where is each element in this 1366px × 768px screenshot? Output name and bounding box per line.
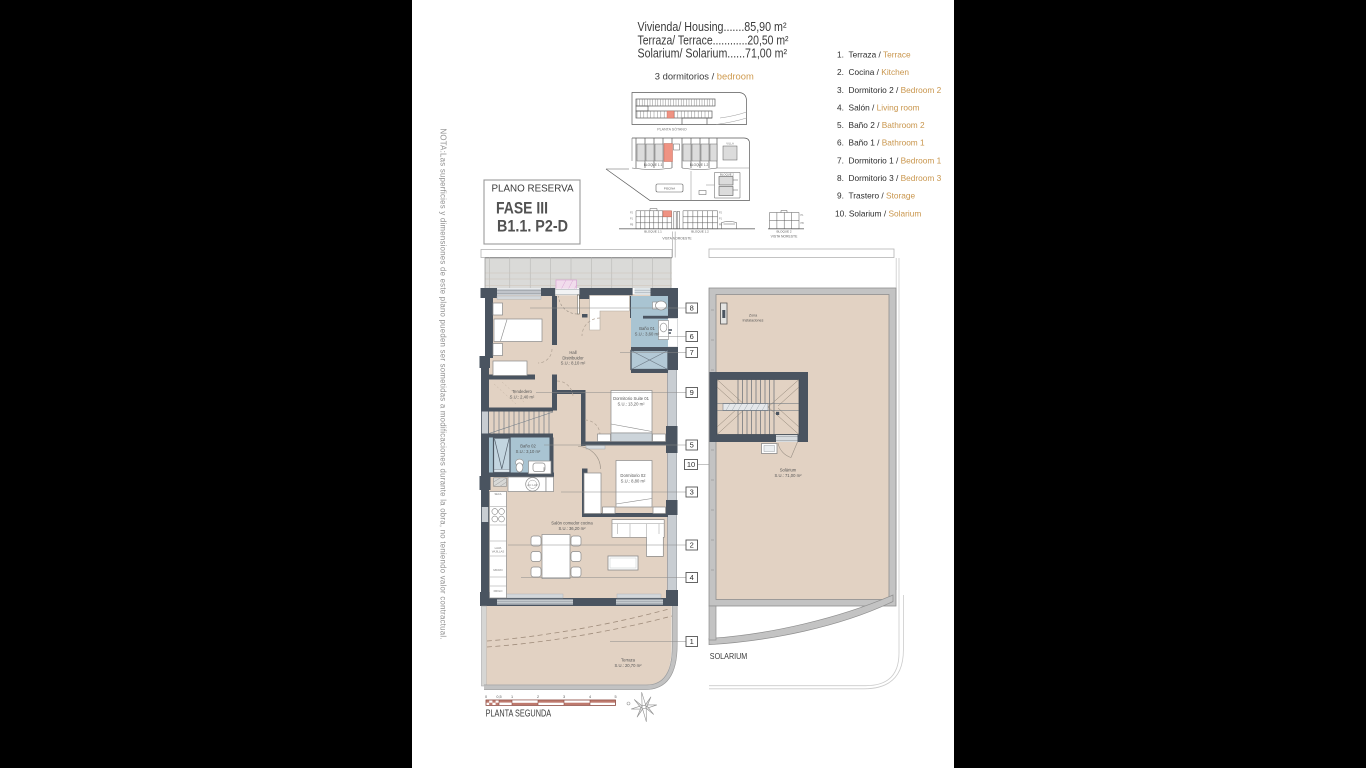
svg-text:B1.1. P2-D: B1.1. P2-D bbox=[497, 218, 568, 236]
svg-text:VISTA NORESTE: VISTA NORESTE bbox=[771, 235, 798, 239]
svg-text:AC LAV: AC LAV bbox=[527, 483, 537, 487]
svg-text:8. Dormitorio 3 / Bedroom 3: 8. Dormitorio 3 / Bedroom 3 bbox=[837, 173, 942, 183]
svg-text:BLOQUE 1.2: BLOQUE 1.2 bbox=[691, 230, 709, 234]
svg-text:3: 3 bbox=[563, 695, 565, 699]
svg-text:1: 1 bbox=[690, 637, 694, 646]
svg-text:S.U.: 13,20 m²: S.U.: 13,20 m² bbox=[618, 401, 646, 406]
svg-text:Instalaciones: Instalaciones bbox=[743, 318, 764, 322]
svg-text:7. Dormitorio 1 / Bedroom 1: 7. Dormitorio 1 / Bedroom 1 bbox=[837, 155, 942, 165]
svg-text:Zona: Zona bbox=[749, 314, 757, 318]
svg-text:S.U.: 3,10 m²: S.U.: 3,10 m² bbox=[516, 449, 541, 454]
svg-text:S.U.: 71,00 m²: S.U.: 71,00 m² bbox=[775, 473, 803, 478]
svg-text:Baño 01: Baño 01 bbox=[639, 326, 655, 331]
svg-text:6: 6 bbox=[690, 332, 694, 341]
svg-text:Salón comedor cocina: Salón comedor cocina bbox=[551, 521, 593, 526]
svg-text:BLOQUE 2: BLOQUE 2 bbox=[776, 230, 791, 234]
svg-text:S.U.: 36,20 m²: S.U.: 36,20 m² bbox=[559, 526, 587, 531]
svg-text:FRIGO: FRIGO bbox=[494, 589, 504, 593]
svg-text:PB: PB bbox=[801, 222, 805, 225]
svg-text:Dormitorio 02: Dormitorio 02 bbox=[620, 473, 646, 478]
svg-text:Distribuidor: Distribuidor bbox=[562, 355, 584, 360]
svg-text:10. Solarium / Solarium: 10. Solarium / Solarium bbox=[835, 208, 921, 218]
svg-text:Dormitorio Suite 01: Dormitorio Suite 01 bbox=[613, 396, 650, 401]
svg-text:VISTA NOROESTE: VISTA NOROESTE bbox=[662, 237, 692, 241]
svg-text:9. Trastero / Storage: 9. Trastero / Storage bbox=[837, 191, 915, 201]
svg-text:5: 5 bbox=[614, 695, 616, 699]
svg-text:2: 2 bbox=[690, 541, 694, 550]
svg-text:SECA: SECA bbox=[494, 492, 501, 496]
svg-text:S.U.: 20,70 m²: S.U.: 20,70 m² bbox=[615, 663, 643, 668]
svg-text:3: 3 bbox=[690, 488, 694, 497]
svg-text:PB: PB bbox=[719, 224, 723, 227]
svg-text:Hall: Hall bbox=[569, 350, 576, 355]
svg-text:Baño 02: Baño 02 bbox=[520, 444, 536, 449]
svg-text:SOLARIUM: SOLARIUM bbox=[710, 651, 748, 661]
svg-text:3. Dormitorio 2 / Bedroom 2: 3. Dormitorio 2 / Bedroom 2 bbox=[837, 85, 942, 95]
svg-text:BLOQUE 2: BLOQUE 2 bbox=[720, 173, 734, 177]
svg-text:5. Baño 2 / Bathroom 2: 5. Baño 2 / Bathroom 2 bbox=[837, 120, 925, 130]
svg-text:4. Salón / Living room: 4. Salón / Living room bbox=[837, 102, 920, 112]
svg-text:NOTA:Las superficies y dimensi: NOTA:Las superficies y dimensiones de es… bbox=[439, 129, 448, 640]
svg-text:4: 4 bbox=[589, 695, 591, 699]
svg-text:Solárium: Solárium bbox=[780, 468, 797, 473]
svg-text:6. Baño 1 / Bathroom 1: 6. Baño 1 / Bathroom 1 bbox=[837, 138, 925, 148]
svg-text:PLANTA SÓTANO: PLANTA SÓTANO bbox=[657, 127, 687, 132]
svg-text:S.U.: 8,80 m²: S.U.: 8,80 m² bbox=[621, 478, 646, 483]
svg-text:S.U.: 8,10 m²: S.U.: 8,10 m² bbox=[561, 361, 586, 366]
svg-text:BLOQUE 1.1: BLOQUE 1.1 bbox=[644, 163, 663, 167]
svg-text:0,5: 0,5 bbox=[496, 695, 501, 699]
svg-text:9: 9 bbox=[690, 388, 694, 397]
svg-text:MICRO: MICRO bbox=[493, 568, 503, 572]
svg-text:7: 7 bbox=[690, 348, 694, 357]
svg-text:PLANO RESERVA: PLANO RESERVA bbox=[492, 184, 574, 195]
svg-text:S.U.: 2,40 m²: S.U.: 2,40 m² bbox=[510, 394, 535, 399]
svg-text:Solarium/ Solarium......71,00: Solarium/ Solarium......71,00 m² bbox=[638, 46, 788, 61]
svg-text:PB: PB bbox=[630, 224, 634, 227]
svg-text:S.U.: 3,60 m²: S.U.: 3,60 m² bbox=[635, 331, 660, 336]
svg-text:BLOQUE 1.2: BLOQUE 1.2 bbox=[690, 163, 709, 167]
svg-text:3 dormitorios / bedroom: 3 dormitorios / bedroom bbox=[655, 72, 754, 83]
svg-text:FASE III: FASE III bbox=[496, 200, 548, 218]
svg-text:PLANTA SEGUNDA: PLANTA SEGUNDA bbox=[486, 708, 552, 719]
svg-text:BLOQUE 1.1: BLOQUE 1.1 bbox=[644, 230, 662, 234]
svg-text:2: 2 bbox=[537, 695, 539, 699]
svg-text:1. Terraza / Terrace: 1. Terraza / Terrace bbox=[837, 50, 911, 60]
svg-text:VILLA: VILLA bbox=[726, 142, 734, 146]
svg-text:Terraza: Terraza bbox=[621, 658, 636, 663]
svg-text:5: 5 bbox=[690, 441, 694, 450]
svg-text:Tendedero: Tendedero bbox=[512, 389, 532, 394]
svg-text:2. Cocina / Kitchen: 2. Cocina / Kitchen bbox=[837, 67, 909, 77]
svg-text:1: 1 bbox=[511, 695, 513, 699]
svg-text:PISCINA: PISCINA bbox=[664, 187, 675, 191]
svg-text:VAJILLAS: VAJILLAS bbox=[492, 549, 505, 553]
svg-text:0: 0 bbox=[485, 695, 487, 699]
svg-text:10: 10 bbox=[687, 460, 695, 469]
svg-text:4: 4 bbox=[690, 573, 694, 582]
svg-text:8: 8 bbox=[690, 304, 694, 313]
